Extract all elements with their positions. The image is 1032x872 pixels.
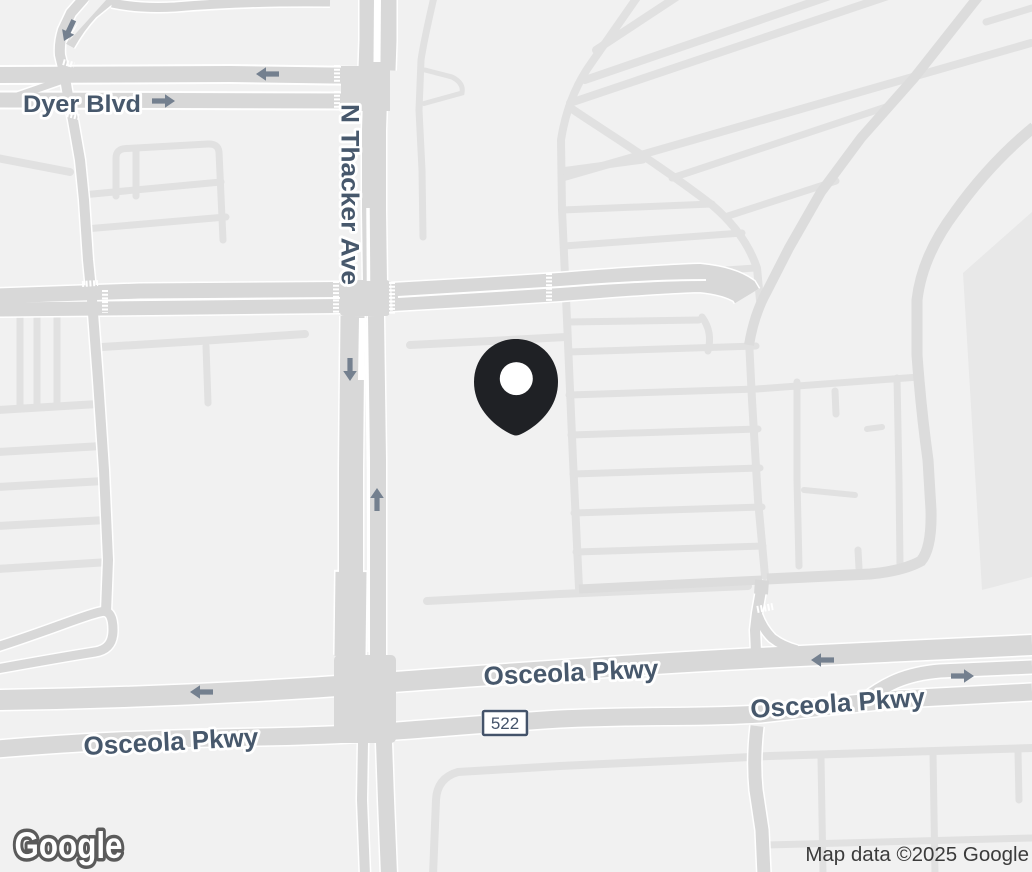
svg-text:522: 522: [491, 714, 519, 733]
svg-text:Map data ©2025 Google: Map data ©2025 Google: [805, 843, 1029, 866]
svg-text:N Thacker Ave: N Thacker Ave: [336, 104, 364, 285]
svg-text:Google: Google: [15, 825, 123, 866]
svg-text:Dyer Blvd: Dyer Blvd: [23, 91, 141, 118]
